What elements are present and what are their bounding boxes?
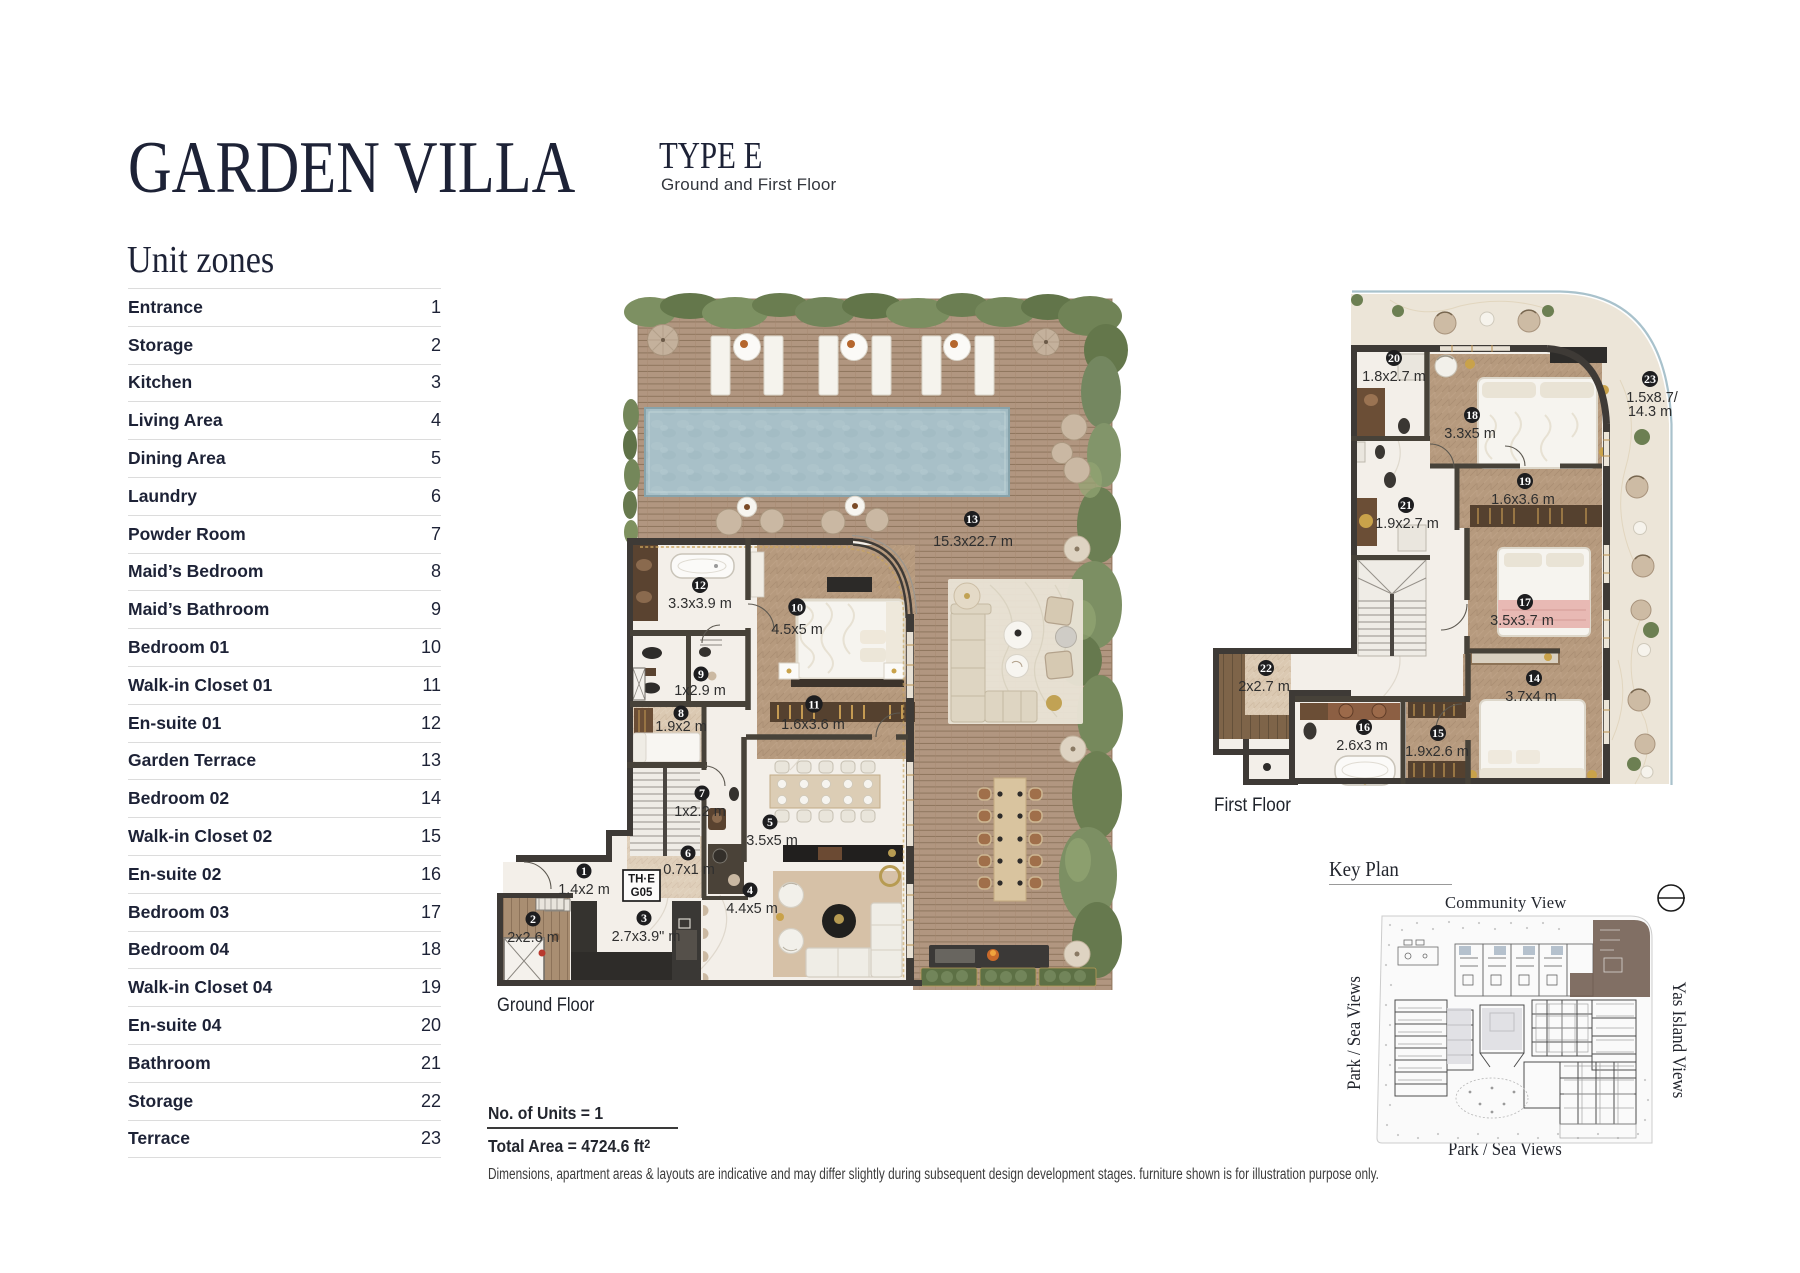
svg-text:2.6x3 m: 2.6x3 m <box>1336 738 1388 754</box>
svg-text:3.5x3.7 m: 3.5x3.7 m <box>1490 613 1554 629</box>
svg-text:7: 7 <box>699 786 705 800</box>
svg-text:18: 18 <box>1466 408 1478 422</box>
svg-text:3.5x5 m: 3.5x5 m <box>746 833 798 849</box>
svg-text:3.3x3.9 m: 3.3x3.9 m <box>668 596 732 612</box>
svg-text:14: 14 <box>1528 671 1540 685</box>
svg-text:1.9x2.6 m: 1.9x2.6 m <box>1405 744 1469 760</box>
svg-text:19: 19 <box>1519 474 1531 488</box>
svg-text:20: 20 <box>1388 351 1400 365</box>
svg-text:2x2.7 m: 2x2.7 m <box>1238 679 1290 695</box>
svg-text:1x2.2 m: 1x2.2 m <box>674 804 726 820</box>
svg-text:15: 15 <box>1432 726 1444 740</box>
svg-text:12: 12 <box>694 578 706 592</box>
svg-text:TH·E: TH·E <box>628 874 655 886</box>
svg-text:1.8x2.7 m: 1.8x2.7 m <box>1362 369 1426 385</box>
svg-text:5: 5 <box>767 815 773 829</box>
svg-text:14.3 m: 14.3 m <box>1628 404 1672 420</box>
svg-text:16: 16 <box>1358 720 1370 734</box>
svg-text:21: 21 <box>1400 498 1412 512</box>
svg-text:3.7x4 m: 3.7x4 m <box>1505 689 1557 705</box>
svg-text:6: 6 <box>685 846 691 860</box>
svg-text:9: 9 <box>698 667 704 681</box>
svg-text:4.5x5 m: 4.5x5 m <box>771 622 823 638</box>
svg-text:11: 11 <box>808 698 819 712</box>
svg-text:1.6x3.6 m: 1.6x3.6 m <box>1491 492 1555 508</box>
svg-text:1: 1 <box>581 864 587 878</box>
svg-text:4: 4 <box>747 883 753 897</box>
svg-text:2x2.6 m: 2x2.6 m <box>507 930 559 946</box>
svg-text:10: 10 <box>791 601 803 615</box>
svg-text:15.3x22.7 m: 15.3x22.7 m <box>933 534 1013 550</box>
svg-text:4.4x5 m: 4.4x5 m <box>726 901 778 917</box>
svg-text:13: 13 <box>966 512 978 526</box>
svg-text:3.3x5 m: 3.3x5 m <box>1444 426 1496 442</box>
svg-text:17: 17 <box>1519 595 1531 609</box>
svg-text:0.7x1 m: 0.7x1 m <box>663 862 715 878</box>
svg-text:1.4x2 m: 1.4x2 m <box>558 882 610 898</box>
svg-text:3: 3 <box>641 911 647 925</box>
svg-text:2.7x3.9" m: 2.7x3.9" m <box>612 929 681 945</box>
svg-text:1.9x2.7 m: 1.9x2.7 m <box>1375 516 1439 532</box>
svg-text:1.9x2 m: 1.9x2 m <box>655 719 707 735</box>
svg-text:22: 22 <box>1260 661 1272 675</box>
svg-text:1.6x3.6 m: 1.6x3.6 m <box>781 717 845 733</box>
svg-text:2: 2 <box>530 912 536 926</box>
svg-text:23: 23 <box>1644 372 1656 386</box>
svg-text:G05: G05 <box>631 887 653 899</box>
svg-text:1x2.9 m: 1x2.9 m <box>674 683 726 699</box>
